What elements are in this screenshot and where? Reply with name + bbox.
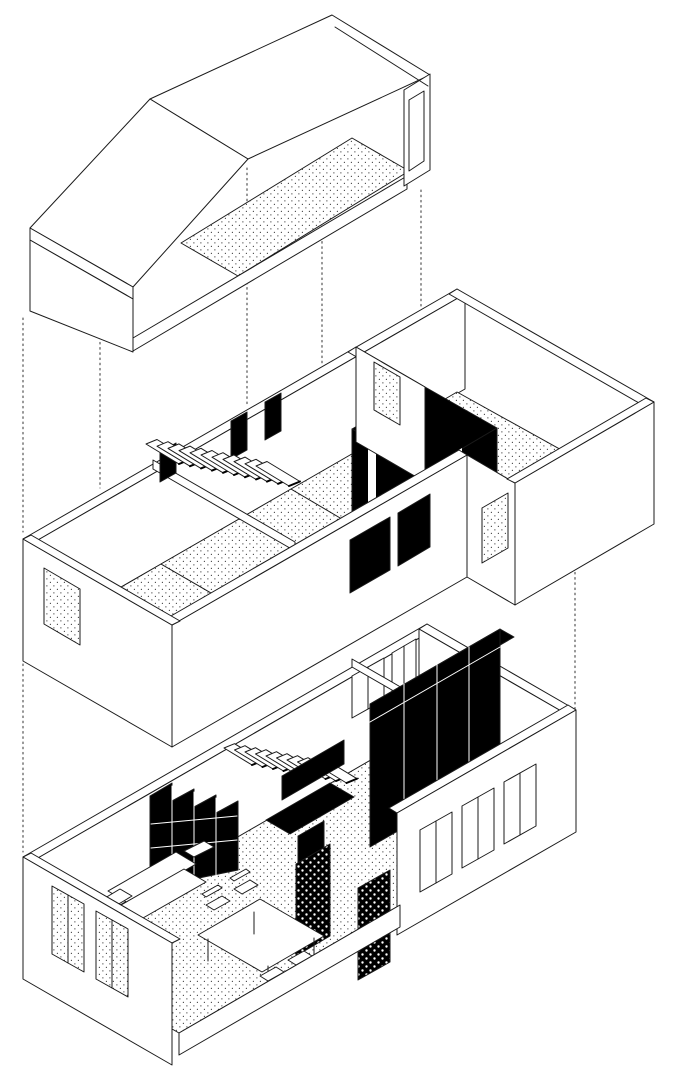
axonometric-exploded-house-drawing bbox=[0, 0, 682, 1080]
roof-right-gable-inner bbox=[409, 91, 424, 171]
drawing-canvas bbox=[0, 0, 682, 1080]
